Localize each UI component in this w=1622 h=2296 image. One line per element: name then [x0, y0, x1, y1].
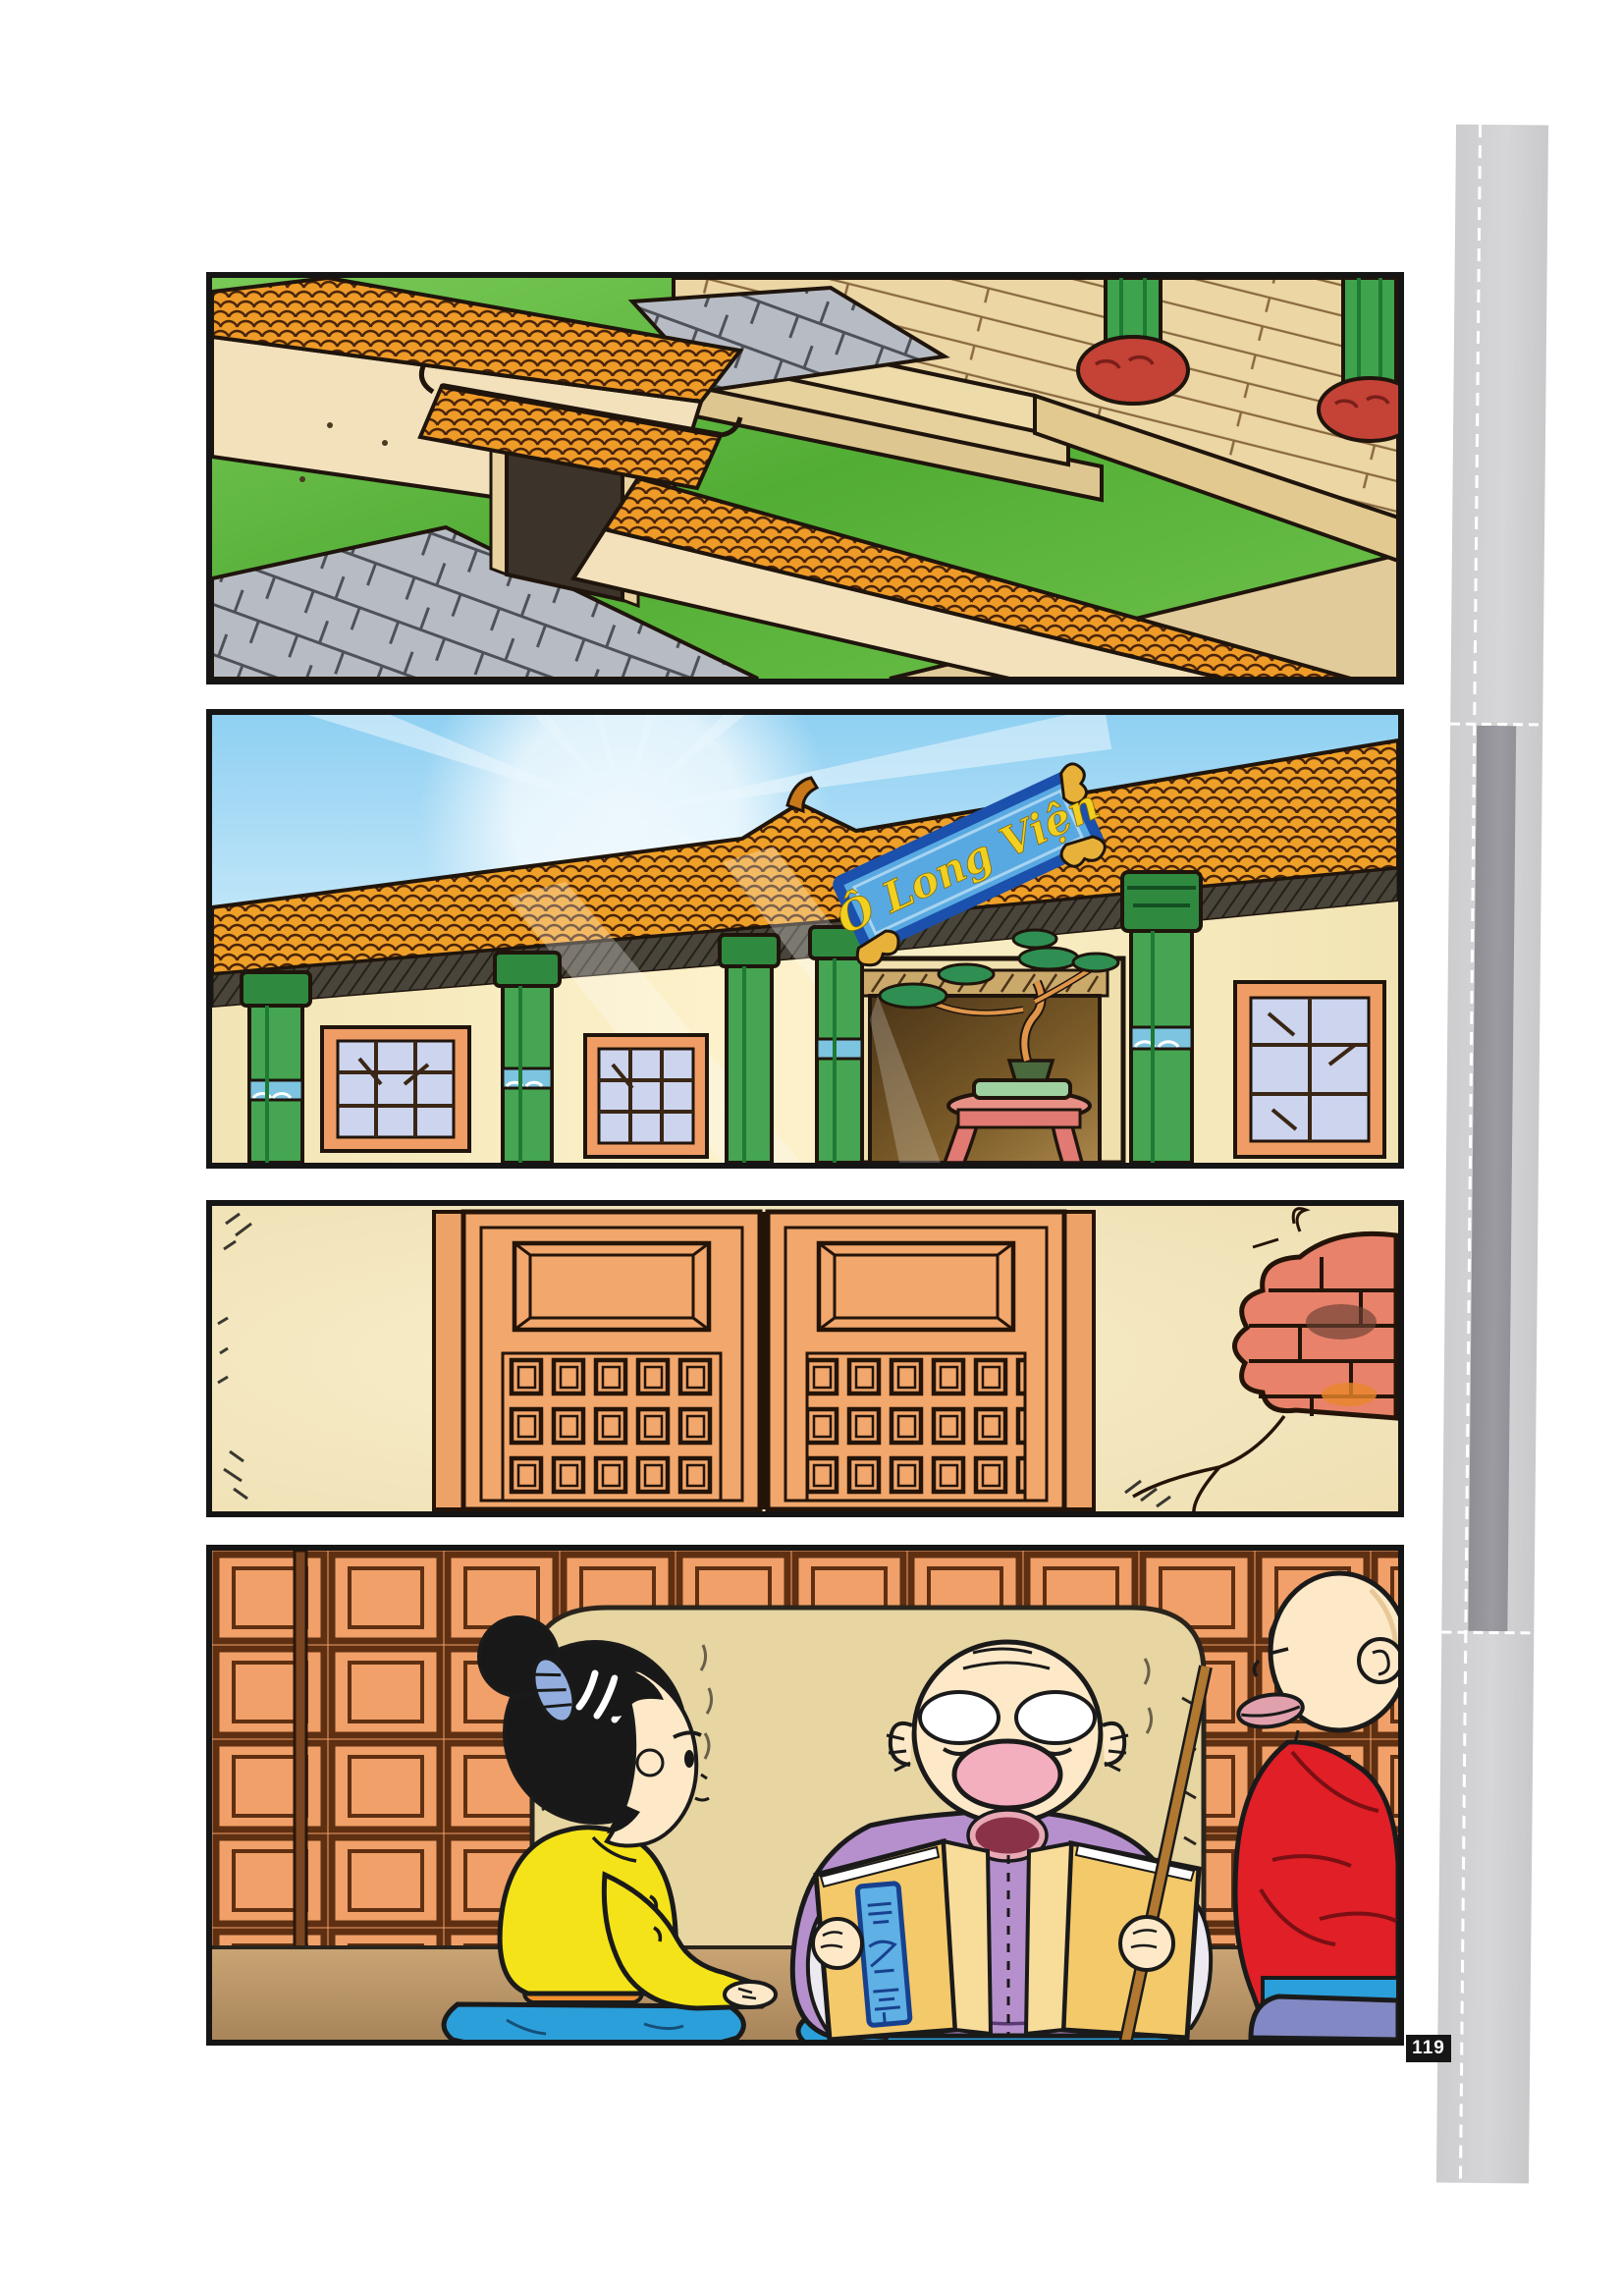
door-leaf-right	[768, 1212, 1064, 1509]
monk-hand-left	[813, 1919, 862, 1968]
column	[1122, 872, 1201, 1163]
book-title-label	[857, 1884, 910, 2026]
monk-eyebrow-left	[920, 1692, 999, 1743]
panel-lesson	[206, 1545, 1404, 2046]
panel-temple-front-art: Ô Long Viện	[212, 715, 1398, 1163]
column	[242, 972, 310, 1163]
page-edge-dash-top	[1450, 723, 1542, 727]
page-edge-dark-band	[1468, 726, 1516, 1631]
panel-wooden-doors	[206, 1200, 1404, 1517]
wall-divider	[295, 1551, 306, 1953]
young-monk-ear	[1359, 1639, 1398, 1682]
lattice-window-3	[1235, 982, 1384, 1157]
panel-temple-front: Ô Long Viện	[206, 709, 1404, 1169]
door-post-right	[1064, 1212, 1094, 1509]
panel-lesson-art	[212, 1551, 1398, 2040]
monk-eyebrow-right	[1016, 1692, 1095, 1743]
girl-hand	[725, 1982, 776, 2007]
lattice-window-1	[322, 1027, 469, 1151]
page-edge-dash-bottom	[1441, 1631, 1534, 1635]
monk-hand-right	[1120, 1917, 1173, 1970]
door-post-left	[434, 1212, 463, 1509]
monk-ear-right	[1103, 1723, 1124, 1765]
page-edge-bar	[1436, 125, 1548, 2184]
monk-ear-left	[891, 1723, 912, 1765]
young-monk-pants	[1251, 1996, 1398, 2040]
monk-nose	[954, 1741, 1060, 1808]
panel-wooden-doors-art	[212, 1206, 1398, 1511]
page-number-badge: 119	[1406, 2035, 1451, 2062]
column	[495, 953, 560, 1163]
panel-courtyard-art	[212, 278, 1398, 679]
girl-eye	[684, 1750, 694, 1768]
column	[720, 935, 779, 1163]
door-leaf-left	[463, 1212, 760, 1509]
comic-page: { "page": { "number": "119", "background…	[0, 0, 1622, 2296]
lattice-window-2	[585, 1035, 707, 1157]
panel-courtyard	[206, 272, 1404, 684]
